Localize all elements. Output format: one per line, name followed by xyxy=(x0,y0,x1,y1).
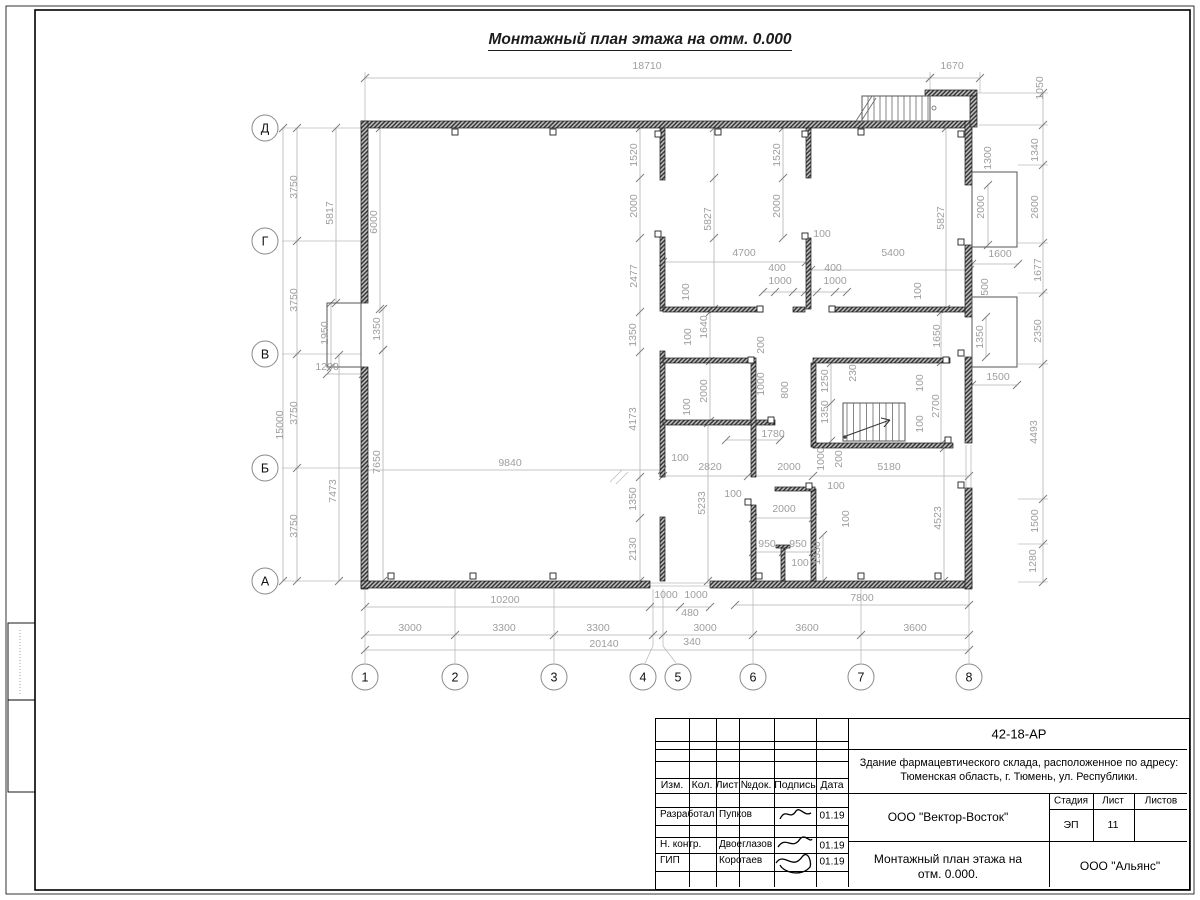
svg-text:3: 3 xyxy=(551,671,558,685)
tb-col-podpis: Подпись xyxy=(774,779,816,791)
dimension-label: 4700 xyxy=(732,247,756,259)
walls xyxy=(361,90,977,589)
dimension-label: 7473 xyxy=(327,479,339,503)
tb-date-ncontr: 01.19 xyxy=(819,841,844,852)
dimension-label: 5233 xyxy=(696,491,708,515)
tb-role-gip: ГИП xyxy=(660,855,680,866)
tb-col-list: Лист xyxy=(716,779,739,791)
axis-bubble: 7 xyxy=(848,664,874,690)
axis-bubble: 2 xyxy=(442,664,468,690)
tb-org-contractor: ООО "Вектор-Восток" xyxy=(888,810,1009,824)
dimension-label: 100 xyxy=(724,488,742,500)
dimension-label: 2820 xyxy=(698,461,722,473)
dimension-label: 2000 xyxy=(772,503,796,515)
dimension-label: 3600 xyxy=(795,622,819,634)
dimension-label: 5400 xyxy=(881,247,905,259)
tb-role-developer: Разработал xyxy=(660,809,714,820)
dimension-label: 5180 xyxy=(877,461,901,473)
svg-text:Б: Б xyxy=(261,462,269,476)
dimension-label: 3000 xyxy=(693,622,717,634)
axis-bubble: 3 xyxy=(541,664,567,690)
dimension-label: 1520 xyxy=(628,143,640,167)
dimension-label: 1340 xyxy=(1029,138,1041,162)
tb-drawing-title-2: отм. 0.000. xyxy=(918,867,978,881)
dimension-label: 2000 xyxy=(771,194,783,218)
dimension-label: 1000 xyxy=(654,589,678,601)
tb-stage-label: Стадия xyxy=(1054,796,1088,807)
dimension-label: 100 xyxy=(912,282,924,300)
dimension-label: 3300 xyxy=(586,622,610,634)
dimension-label: 5817 xyxy=(324,201,336,225)
dimension-label: 18710 xyxy=(632,60,661,72)
tb-sheets-label: Листов xyxy=(1145,796,1178,807)
dimension-label: 950 xyxy=(758,538,776,550)
tb-stage-value: ЭП xyxy=(1063,819,1078,831)
dimension-label: 1650 xyxy=(931,324,943,348)
dimension-label: 2130 xyxy=(627,537,639,561)
dimension-label: 2000 xyxy=(975,195,987,219)
dimension-label: 1000 xyxy=(684,589,708,601)
dimension-label: 340 xyxy=(683,636,701,648)
dimension-label: 3600 xyxy=(903,622,927,634)
tb-project-line1: Здание фармацевтического склада, располо… xyxy=(860,757,1179,769)
svg-text:Д: Д xyxy=(261,122,270,136)
dimension-label: 1640 xyxy=(698,315,710,339)
svg-text:4: 4 xyxy=(640,671,647,685)
dimension-label: 100 xyxy=(840,510,852,528)
dimension-label: 100 xyxy=(914,415,926,433)
axis-bubble: 1 xyxy=(352,664,378,690)
dimension-label: 1500 xyxy=(1029,509,1041,533)
dimension-label: 2000 xyxy=(698,379,710,403)
dimension-label: 1000 xyxy=(815,447,827,471)
drawing-sheet: { "sheet": { "title": "Монтажный план эт… xyxy=(0,0,1200,900)
dimension-label: 1300 xyxy=(982,146,994,170)
dimension-label: 100 xyxy=(914,374,926,392)
axis-bubble: 8 xyxy=(956,664,982,690)
dimension-label: 100 xyxy=(827,480,845,492)
dimension-label: 3000 xyxy=(398,622,422,634)
svg-text:7: 7 xyxy=(858,671,865,685)
tb-sheet-value: 11 xyxy=(1108,819,1119,831)
dimension-label: 1000 xyxy=(823,275,847,287)
dimension-label: 2000 xyxy=(628,194,640,218)
tb-drawing-title-1: Монтажный план этажа на xyxy=(874,852,1022,866)
svg-text:5: 5 xyxy=(675,671,682,685)
dimension-label: 1520 xyxy=(771,143,783,167)
dimension-label: 1350 xyxy=(627,323,639,347)
tb-sheet-label: Лист xyxy=(1102,796,1124,807)
dimension-label: 5827 xyxy=(935,206,947,230)
dimension-label: 4523 xyxy=(932,506,944,530)
dimension-label: 1350 xyxy=(819,400,831,424)
tb-date-developer: 01.19 xyxy=(819,811,844,822)
dimension-label: 100 xyxy=(680,283,692,301)
dimension-label: 1250 xyxy=(819,369,831,393)
dimension-label: 2600 xyxy=(1029,195,1041,219)
dimension-label: 1000 xyxy=(755,372,767,396)
axis-bubble: Г xyxy=(252,228,278,254)
dimension-label: 100 xyxy=(791,557,809,569)
dimension-label: 1530 xyxy=(811,541,823,565)
page-title: Монтажный план этажа на отм. 0.000 xyxy=(395,31,885,49)
dimension-label: 400 xyxy=(768,262,786,274)
tb-org-customer: ООО "Альянс" xyxy=(1080,859,1160,873)
svg-text:6: 6 xyxy=(750,671,757,685)
dimension-label: 4173 xyxy=(627,407,639,431)
title-block: Изм. Кол. Лист №док. Подпись Дата Разраб… xyxy=(655,718,1190,890)
dimension-label: 500 xyxy=(979,278,991,296)
svg-text:В: В xyxy=(261,348,269,362)
svg-text:1: 1 xyxy=(362,671,369,685)
tb-name-gip: Коротаев xyxy=(719,855,762,866)
dimension-label: 3750 xyxy=(288,401,300,425)
tb-col-kol: Кол. xyxy=(692,779,713,791)
dimension-label: 6000 xyxy=(368,210,380,234)
dimension-label: 3750 xyxy=(288,175,300,199)
tb-col-data: Дата xyxy=(820,779,843,791)
svg-text:А: А xyxy=(261,575,270,589)
svg-text:8: 8 xyxy=(966,671,973,685)
dimension-label: 1500 xyxy=(986,371,1010,383)
dimension-label: 100 xyxy=(671,452,689,464)
dimension-label: 1350 xyxy=(974,325,986,349)
dimension-label: 1950 xyxy=(319,321,331,345)
axis-bubble: А xyxy=(252,568,278,594)
axis-bubble: Б xyxy=(252,455,278,481)
dimension-label: 20140 xyxy=(589,638,618,650)
dimension-label: 200 xyxy=(833,450,845,468)
dimension-label: 1350 xyxy=(627,487,639,511)
axis-bubble: 6 xyxy=(740,664,766,690)
dimension-label: 7650 xyxy=(371,450,383,474)
tb-col-ndoc: №док. xyxy=(741,779,772,791)
dimension-label: 2350 xyxy=(1032,319,1044,343)
dimension-label: 800 xyxy=(779,381,791,399)
dimension-label: 1280 xyxy=(1027,549,1039,573)
dimension-label: 1000 xyxy=(768,275,792,287)
dimension-label: 1670 xyxy=(940,60,964,72)
dimension-label: 1050 xyxy=(1034,76,1046,100)
svg-text:Г: Г xyxy=(262,235,269,249)
dimension-label: 3750 xyxy=(288,514,300,538)
tb-name-ncontr: Двоеглазов xyxy=(719,839,772,850)
dimension-label: 9840 xyxy=(498,457,522,469)
dimension-label: 10200 xyxy=(490,594,519,606)
tb-doc-number: 42-18-АР xyxy=(992,727,1047,742)
signature-developer xyxy=(776,805,814,825)
axis-bubble: 5 xyxy=(665,664,691,690)
dimension-label: 1600 xyxy=(988,248,1012,260)
tb-date-gip: 01.19 xyxy=(819,857,844,868)
dimension-label: 2700 xyxy=(930,394,942,418)
dimension-label: 200 xyxy=(755,336,767,354)
dimension-label: 1677 xyxy=(1032,258,1044,282)
dimension-label: 100 xyxy=(681,398,693,416)
axis-bubble: Д xyxy=(252,115,278,141)
dimension-label: 2477 xyxy=(628,264,640,288)
dimension-label: 230 xyxy=(847,364,859,382)
dimension-label: 3750 xyxy=(288,288,300,312)
dimension-label: 100 xyxy=(813,228,831,240)
dimension-label: 480 xyxy=(681,607,699,619)
tb-role-ncontr: Н. контр. xyxy=(660,839,701,850)
dimension-label: 1200 xyxy=(315,361,339,373)
dimension-label: 100 xyxy=(682,328,694,346)
dimension-label: 950 xyxy=(789,538,807,550)
dimension-label: 4493 xyxy=(1028,420,1040,444)
axis-bubble: В xyxy=(252,341,278,367)
tb-name-developer: Пупков xyxy=(719,809,752,820)
dimension-label: 1780 xyxy=(761,428,785,440)
dimension-label: 3300 xyxy=(492,622,516,634)
dimension-label: 7800 xyxy=(850,592,874,604)
axis-bubble: 4 xyxy=(630,664,656,690)
dimension-label: 5827 xyxy=(702,207,714,231)
svg-text:2: 2 xyxy=(452,671,459,685)
dimension-label: 400 xyxy=(824,262,842,274)
dimension-label: 15000 xyxy=(274,410,286,439)
dimension-label: 2000 xyxy=(777,461,801,473)
tb-project-line2: Тюменская область, г. Тюмень, ул. Респуб… xyxy=(900,771,1137,783)
tb-col-izm: Изм. xyxy=(661,779,684,791)
dimension-label: 1350 xyxy=(371,317,383,341)
signature-ncontr-gip xyxy=(772,833,814,877)
